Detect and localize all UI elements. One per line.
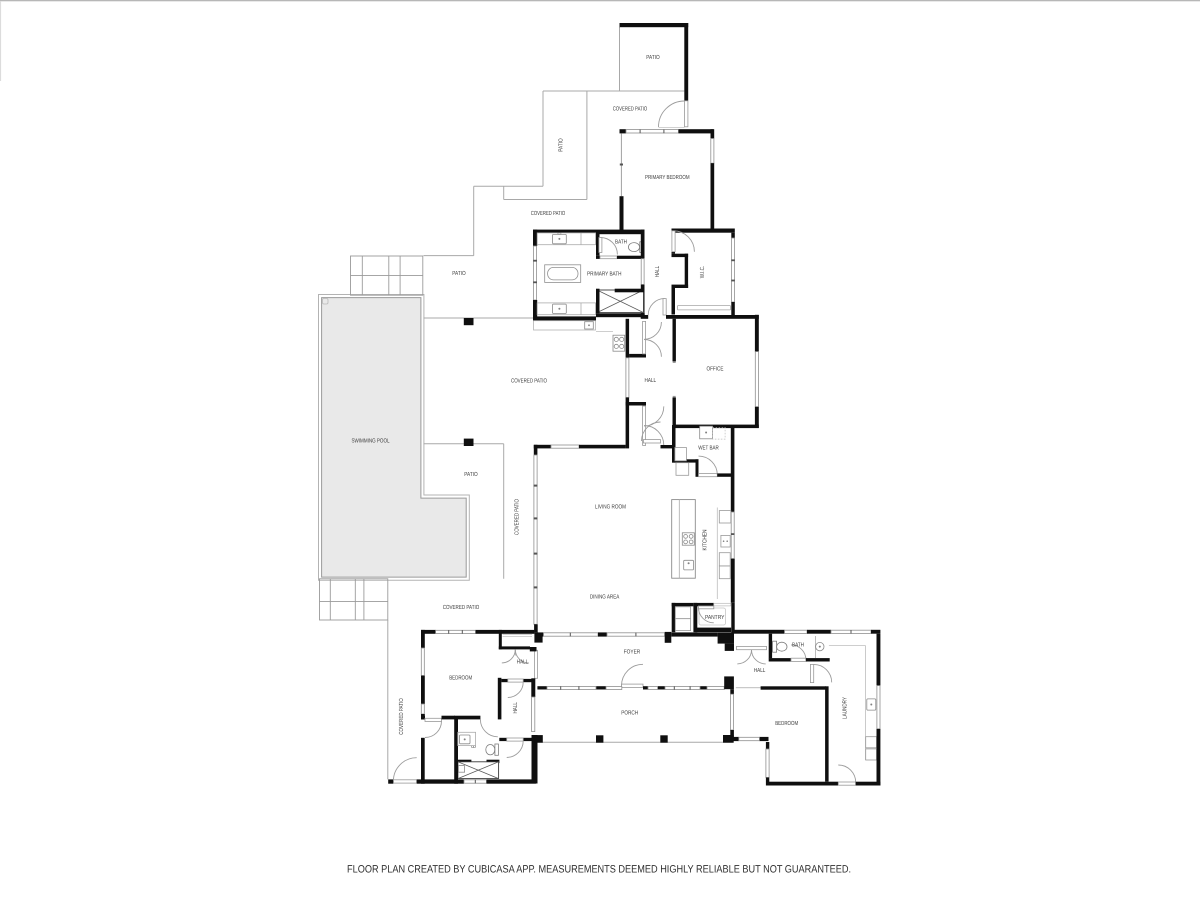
svg-text:DINING AREA: DINING AREA (590, 593, 620, 600)
svg-text:COVERED PATIO: COVERED PATIO (514, 499, 521, 535)
svg-text:SWIMMING POOL: SWIMMING POOL (352, 438, 391, 445)
svg-text:LIVING ROOM: LIVING ROOM (595, 504, 626, 511)
svg-text:PRIMARY BATH: PRIMARY BATH (587, 270, 622, 277)
svg-text:FOYER: FOYER (624, 648, 641, 655)
svg-text:BEDROOM: BEDROOM (775, 720, 798, 727)
svg-text:HALL: HALL (512, 701, 519, 713)
svg-text:PATIO: PATIO (558, 138, 565, 152)
svg-text:PANTRY: PANTRY (705, 614, 725, 621)
svg-text:HALL: HALL (517, 658, 529, 665)
svg-text:COVERED PATIO: COVERED PATIO (511, 377, 547, 384)
svg-text:COVERED PATIO: COVERED PATIO (443, 604, 480, 611)
svg-text:W.I.C.: W.I.C. (699, 265, 706, 278)
svg-text:BEDROOM: BEDROOM (449, 674, 472, 681)
svg-text:BATH: BATH (792, 641, 804, 648)
svg-text:PRIMARY BEDROOM: PRIMARY BEDROOM (645, 174, 690, 181)
svg-text:HALL: HALL (645, 377, 657, 384)
svg-text:PORCH: PORCH (621, 709, 638, 716)
svg-text:PATIO: PATIO (464, 471, 478, 478)
svg-text:KITCHEN: KITCHEN (702, 530, 709, 551)
svg-text:COVERED PATIO: COVERED PATIO (531, 210, 566, 217)
svg-text:LAUNDRY: LAUNDRY (842, 697, 849, 719)
svg-text:PATIO: PATIO (452, 270, 466, 277)
svg-text:HALL: HALL (754, 667, 766, 674)
svg-text:BATH: BATH (615, 239, 627, 246)
svg-text:COVERED PATIO: COVERED PATIO (398, 698, 405, 735)
svg-text:COVERED PATIO: COVERED PATIO (613, 106, 648, 113)
svg-text:PATIO: PATIO (646, 54, 660, 61)
svg-text:OFFICE: OFFICE (707, 365, 724, 372)
svg-text:HALL: HALL (654, 265, 661, 277)
svg-text:WET BAR: WET BAR (698, 445, 719, 452)
svg-text:FLOOR PLAN CREATED BY CUBICASA: FLOOR PLAN CREATED BY CUBICASA APP. MEAS… (347, 863, 851, 875)
